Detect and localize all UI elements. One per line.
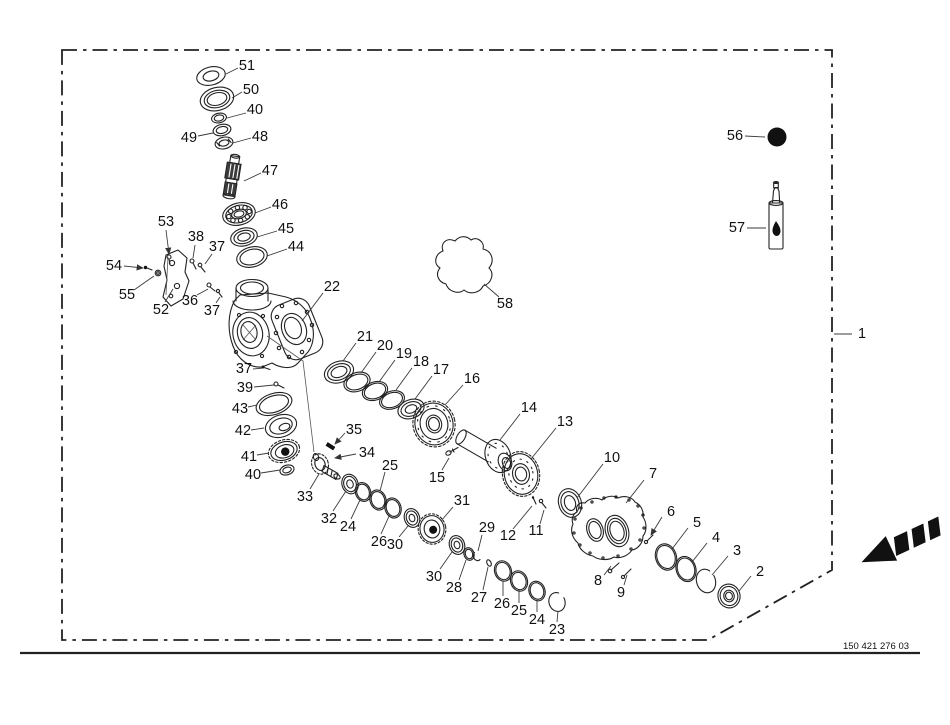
callout-label-36: 36 <box>182 293 198 309</box>
leader-line-29 <box>478 535 482 551</box>
part-17-bearing <box>395 396 427 423</box>
callout-label-37: 37 <box>204 303 220 319</box>
leader-line-44 <box>267 249 287 256</box>
part-55-washer <box>155 270 161 276</box>
leader-line-16 <box>445 385 463 405</box>
leader-line-40 <box>227 113 246 118</box>
direction-arrow-icon <box>856 512 948 574</box>
callout-label-57: 57 <box>729 220 745 236</box>
leader-line-31 <box>441 507 453 521</box>
part-46-ball-bearing <box>220 199 257 228</box>
callout-label-54: 54 <box>106 258 122 274</box>
part-13-sprocket <box>498 448 544 500</box>
part-23-snap-ring <box>546 590 567 613</box>
callout-label-56: 56 <box>727 128 743 144</box>
callout-label-39: 39 <box>237 380 253 396</box>
part-33-pinion-shaft <box>309 451 341 480</box>
part-57-sealant-tube <box>769 182 783 250</box>
part-2-seal <box>715 582 742 611</box>
part-48-ring <box>214 135 234 150</box>
callout-label-46: 46 <box>272 197 288 213</box>
leader-line-34 <box>335 454 356 458</box>
leader-line-20 <box>361 352 376 373</box>
callout-label-42: 42 <box>235 423 251 439</box>
callout-label-13: 13 <box>557 414 573 430</box>
callout-label-37: 37 <box>236 361 252 377</box>
callout-label-11: 11 <box>528 523 543 539</box>
part-7-cover-plate <box>572 496 646 560</box>
leader-line-37 <box>205 254 212 264</box>
leader-line-2 <box>739 576 751 591</box>
part-24-ring-b <box>526 579 547 603</box>
part-54-screw <box>144 266 152 270</box>
leader-line-39 <box>254 385 274 387</box>
part-40-ring-b <box>279 463 296 477</box>
callout-label-27: 27 <box>471 590 487 606</box>
callout-label-20: 20 <box>377 338 393 354</box>
part-58-gasket-outline <box>436 237 492 293</box>
part-number: 150 421 276 03 <box>843 641 909 652</box>
leader-line-55 <box>134 276 154 290</box>
leader-line-42 <box>251 428 264 430</box>
part-22-housing <box>229 280 327 368</box>
leader-line-14 <box>500 414 520 440</box>
leader-line-21 <box>343 343 356 361</box>
part-50-seal-ring <box>198 84 237 115</box>
callout-label-35: 35 <box>346 422 362 438</box>
part-56-grease-dot <box>768 128 787 147</box>
leader-line-6 <box>651 517 662 535</box>
callout-label-22: 22 <box>324 279 340 295</box>
callout-label-7: 7 <box>649 466 657 482</box>
part-51-washer <box>195 64 227 88</box>
part-30-ring-a <box>402 507 422 530</box>
part-41-bevel-gear <box>265 436 302 467</box>
leader-line-11 <box>540 510 544 524</box>
part-6-screw <box>644 535 653 544</box>
leader-line-25 <box>380 472 385 491</box>
callout-label-53: 53 <box>158 214 174 230</box>
leader-line-15 <box>442 458 449 470</box>
callout-label-23: 23 <box>549 622 565 638</box>
part-37-bolt-a <box>198 263 205 272</box>
callout-label-40: 40 <box>247 102 263 118</box>
part-37-bolt-b <box>216 289 222 297</box>
callout-label-51: 51 <box>239 58 255 74</box>
leader-line-32 <box>333 491 346 511</box>
drawing-border <box>62 50 832 640</box>
part-15-bolt <box>445 448 458 457</box>
part-49-ring <box>212 123 232 138</box>
part-38-bolt <box>190 259 196 269</box>
callout-label-45: 45 <box>278 221 294 237</box>
callout-label-19: 19 <box>396 346 412 362</box>
leader-line-36 <box>197 289 208 295</box>
leader-line-4 <box>692 543 707 562</box>
leader-line-30 <box>440 552 452 569</box>
leader-line-27 <box>483 567 488 590</box>
leader-line-7 <box>626 480 644 503</box>
callout-label-24: 24 <box>529 612 545 628</box>
leader-line-51 <box>226 68 238 74</box>
part-40-ring-top <box>211 112 228 125</box>
callout-label-34: 34 <box>359 445 375 461</box>
callout-label-6: 6 <box>667 504 675 520</box>
leader-line-28 <box>459 560 466 580</box>
leader-line-41 <box>257 453 269 455</box>
part-31-gear <box>416 512 448 547</box>
callout-label-37: 37 <box>209 239 225 255</box>
part-26-ring-a <box>382 496 404 520</box>
callout-label-15: 15 <box>429 470 445 486</box>
leader-line-3 <box>712 556 728 575</box>
callout-label-14: 14 <box>521 400 537 416</box>
callout-label-30: 30 <box>426 569 442 585</box>
callout-label-8: 8 <box>594 573 602 589</box>
leader-line-35 <box>335 433 345 444</box>
callout-label-40: 40 <box>245 467 261 483</box>
callout-label-41: 41 <box>241 449 257 465</box>
leader-line-46 <box>255 207 271 213</box>
leader-line-17 <box>415 376 432 399</box>
part-21-bearing-ring <box>321 357 356 387</box>
leader-line-18 <box>396 368 412 390</box>
parts-diagram: 150 421 276 03 <box>0 0 950 725</box>
callout-label-58: 58 <box>497 296 513 312</box>
callout-label-24: 24 <box>340 519 356 535</box>
part-12-pin <box>532 496 536 504</box>
callout-label-48: 48 <box>252 129 268 145</box>
callout-label-44: 44 <box>288 239 304 255</box>
callout-label-10: 10 <box>604 450 620 466</box>
part-37-screw-c <box>262 366 271 370</box>
leader-line-26 <box>381 514 390 534</box>
leader-line-49 <box>198 133 213 136</box>
leader-line-53 <box>166 230 169 254</box>
callout-label-28: 28 <box>446 580 462 596</box>
leader-line-45 <box>257 231 277 237</box>
part-16-gear <box>408 397 460 452</box>
leader-line-48 <box>233 138 251 143</box>
part-14-hub-shaft <box>454 428 516 476</box>
callout-label-49: 49 <box>181 130 197 146</box>
part-47-spline-shaft <box>222 153 243 199</box>
part-45-shaft-seal <box>229 225 259 249</box>
callout-label-21: 21 <box>357 329 373 345</box>
callout-label-25: 25 <box>511 603 527 619</box>
leader-line-22 <box>302 293 323 321</box>
part-11-bolt <box>539 499 546 508</box>
callout-label-1: 1 <box>858 326 866 342</box>
callout-label-33: 33 <box>297 489 313 505</box>
callout-label-30: 30 <box>387 537 403 553</box>
leader-line-19 <box>379 360 395 382</box>
part-44-ring <box>235 244 270 271</box>
leader-line-37 <box>253 368 263 369</box>
callout-label-43: 43 <box>232 401 248 417</box>
callout-label-12: 12 <box>500 528 516 544</box>
callout-label-16: 16 <box>464 371 480 387</box>
leader-line-13 <box>531 428 556 459</box>
callout-label-18: 18 <box>413 354 429 370</box>
callout-label-5: 5 <box>693 515 701 531</box>
leader-line-54 <box>124 266 143 268</box>
part-18-ring <box>377 387 407 412</box>
leader-line-56 <box>745 136 765 137</box>
callout-label-31: 31 <box>454 493 470 509</box>
callout-label-25: 25 <box>382 458 398 474</box>
leader-line-33 <box>310 474 319 489</box>
callout-label-4: 4 <box>712 530 720 546</box>
leader-line-47 <box>244 173 261 181</box>
leader-line-23 <box>557 611 558 622</box>
callout-label-50: 50 <box>243 82 259 98</box>
part-27-pin <box>486 559 492 567</box>
callout-label-32: 32 <box>321 511 337 527</box>
part-35-pin <box>326 442 336 450</box>
callout-label-2: 2 <box>756 564 764 580</box>
callout-label-26: 26 <box>494 596 510 612</box>
callout-label-38: 38 <box>188 229 204 245</box>
callout-label-9: 9 <box>617 585 625 601</box>
leader-line-30 <box>399 526 408 537</box>
callout-label-52: 52 <box>153 302 169 318</box>
exploded-parts-diagram-page: 150 421 276 03 <box>0 0 950 725</box>
callout-label-47: 47 <box>262 163 278 179</box>
callout-label-29: 29 <box>479 520 495 536</box>
leader-line-38 <box>193 245 195 258</box>
leader-line-8 <box>604 566 611 575</box>
leader-line-10 <box>577 464 603 498</box>
callout-label-26: 26 <box>371 534 387 550</box>
leader-line-40 <box>261 470 280 473</box>
droplet-icon <box>772 221 780 236</box>
callout-label-17: 17 <box>433 362 449 378</box>
part-39-screw <box>274 382 284 388</box>
leader-line-24 <box>351 500 360 519</box>
callout-label-55: 55 <box>119 287 135 303</box>
part-36-bolt <box>207 283 215 291</box>
part-19-ring <box>360 378 391 404</box>
leader-line-5 <box>672 528 688 549</box>
callout-label-3: 3 <box>733 543 741 559</box>
